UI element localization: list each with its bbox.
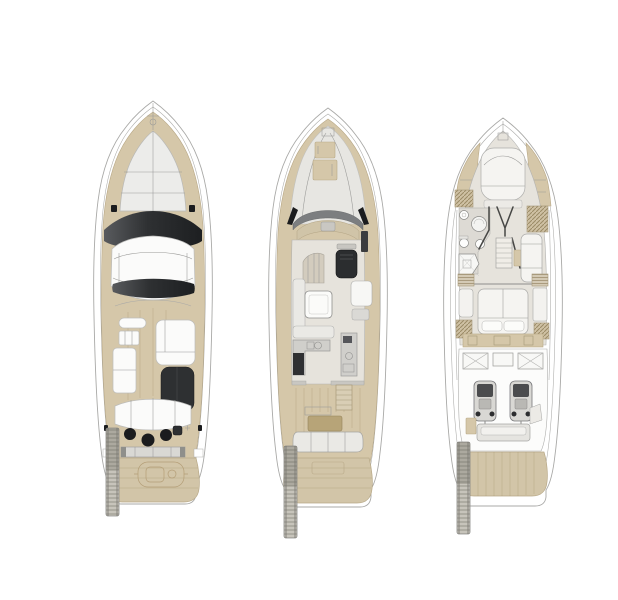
lower-deck-plan bbox=[444, 118, 563, 534]
flybridge-settee bbox=[156, 320, 195, 365]
yacht-deck-plans bbox=[0, 0, 618, 600]
vent-port bbox=[458, 274, 474, 286]
companionway-stairs bbox=[303, 253, 324, 283]
master-bench-port bbox=[459, 289, 473, 317]
tv-cabinet bbox=[361, 231, 368, 252]
passerelle bbox=[284, 446, 297, 538]
deck-hatch-starboard bbox=[518, 353, 543, 369]
passerelle bbox=[457, 442, 470, 534]
starboard-cabinet bbox=[352, 309, 369, 320]
cockpit-stairs bbox=[336, 385, 352, 410]
deck-hatch-port bbox=[463, 353, 488, 369]
helm-console bbox=[321, 222, 335, 231]
salon-sofa-aft bbox=[293, 326, 334, 338]
engine-port bbox=[474, 381, 496, 428]
helm-seat bbox=[336, 250, 357, 278]
deck-hatch-center bbox=[493, 353, 513, 366]
bow-sunpad-hatch bbox=[313, 160, 337, 180]
swim-platform bbox=[107, 458, 200, 502]
passerelle bbox=[106, 428, 119, 516]
aft-bulkhead-starboard bbox=[331, 381, 364, 385]
main-deck-plan bbox=[269, 108, 388, 538]
wardrobe-starboard bbox=[527, 206, 548, 232]
deck-plans-canvas bbox=[0, 0, 618, 600]
galley-range bbox=[293, 353, 304, 375]
pillow-starboard bbox=[504, 321, 524, 331]
sun-lounger bbox=[113, 348, 136, 393]
aft-bulkhead-port bbox=[292, 381, 306, 385]
windscreen-vent bbox=[119, 318, 146, 328]
salon-sofa bbox=[293, 279, 305, 332]
flybridge-deck-plan bbox=[94, 101, 213, 516]
cockpit-table bbox=[308, 416, 342, 431]
starboard-cleat bbox=[189, 205, 195, 212]
vent-starboard bbox=[532, 274, 548, 286]
aft-glass-band bbox=[112, 279, 195, 298]
console-box bbox=[119, 331, 139, 345]
starboard-boarding-gate bbox=[194, 449, 203, 457]
starboard-chair bbox=[351, 281, 372, 306]
engine-starboard bbox=[510, 381, 532, 428]
transom-step-hatch bbox=[121, 447, 185, 457]
port-cleat bbox=[111, 205, 117, 212]
wardrobe-port-fwd bbox=[455, 190, 473, 207]
master-shelf-starboard bbox=[533, 288, 547, 321]
pillow-port bbox=[482, 321, 502, 331]
stern-locker bbox=[466, 418, 476, 434]
